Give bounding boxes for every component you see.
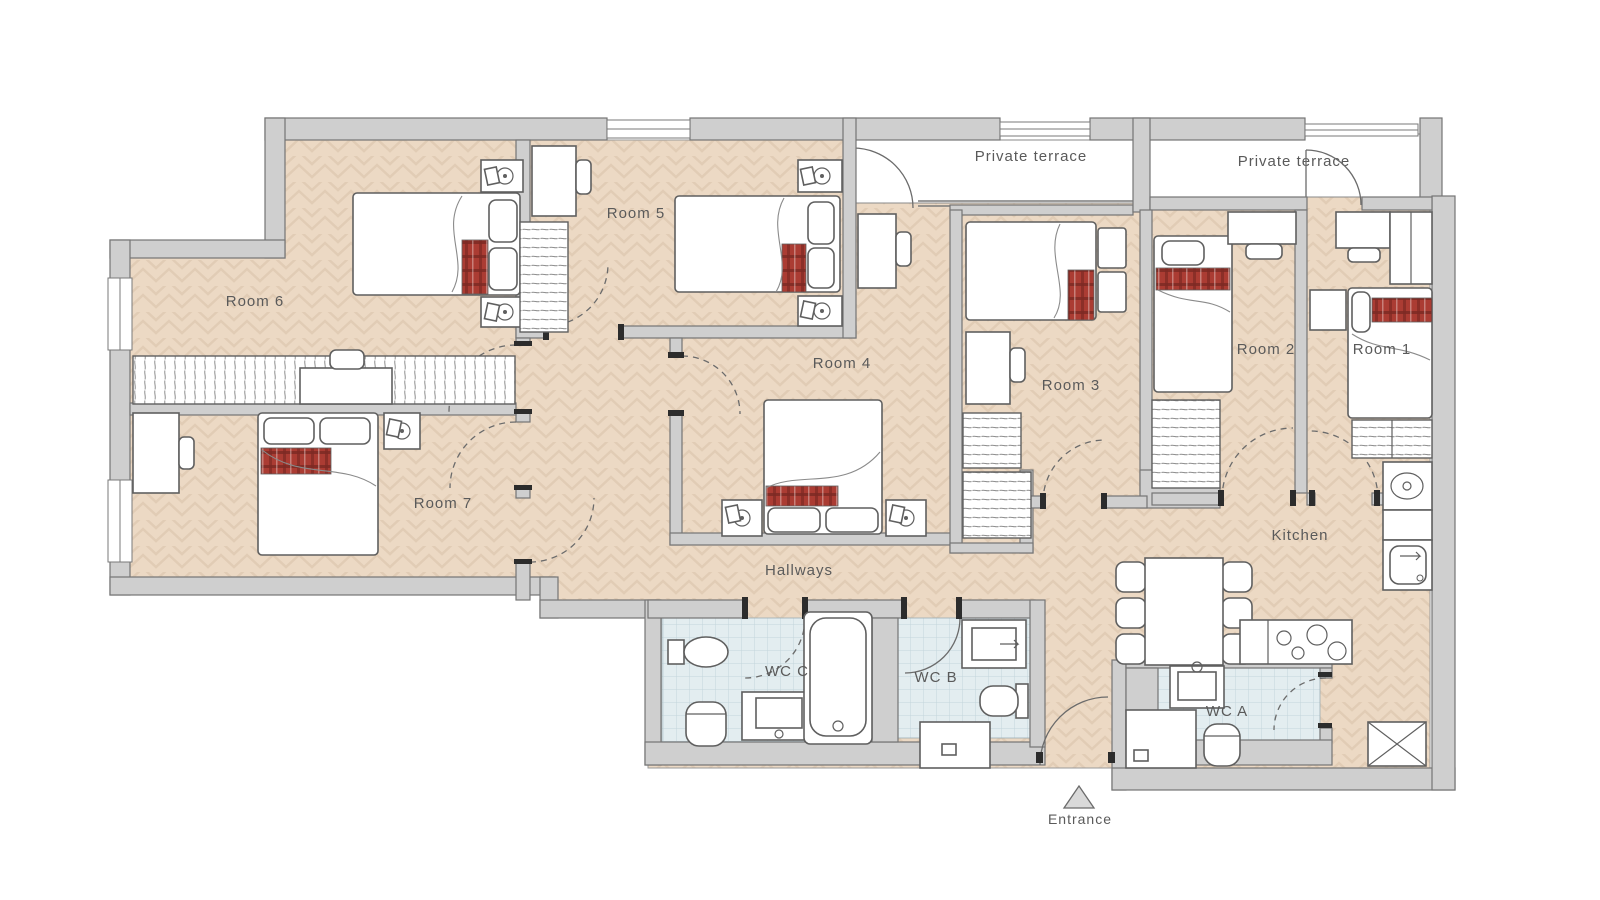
sink <box>962 620 1026 668</box>
toilet <box>686 702 726 746</box>
wardrobe <box>520 222 568 332</box>
shaft <box>1368 722 1426 766</box>
terrace-left: Private terrace <box>853 140 1133 208</box>
room-5-label: Room 5 <box>607 205 666 222</box>
terrace-left-railing <box>1000 122 1090 136</box>
entrance: Entrance <box>1048 786 1112 827</box>
room-2-label: Room 2 <box>1237 341 1296 358</box>
terrace-right-railing <box>1305 124 1418 136</box>
nightstand <box>798 160 842 192</box>
floor-plan-page: Private terrace Private terrace <box>0 0 1600 900</box>
double-bed <box>353 193 520 295</box>
shower <box>1126 710 1196 768</box>
shower <box>920 722 990 768</box>
wc-a-label: WC A <box>1206 703 1248 720</box>
wardrobe <box>1152 400 1220 488</box>
window-top <box>607 120 690 138</box>
toilet <box>1204 724 1240 766</box>
room-7-label: Room 7 <box>414 495 473 512</box>
bidet <box>668 637 728 667</box>
double-bed <box>675 196 840 292</box>
wc-b-label: WC B <box>914 669 957 686</box>
room-1-label: Room 1 <box>1353 341 1412 358</box>
nightstand <box>1310 290 1346 330</box>
hallways-label: Hallways <box>765 562 833 579</box>
room-4-label: Room 4 <box>813 355 872 372</box>
wardrobe <box>963 472 1031 538</box>
bathtub <box>804 612 872 744</box>
nightstand <box>886 500 926 536</box>
nightstand <box>384 413 420 449</box>
floor-plan: Private terrace Private terrace <box>0 0 1600 900</box>
sink <box>1170 662 1224 708</box>
kitchen-label: Kitchen <box>1271 527 1328 544</box>
entrance-marker <box>1064 786 1094 808</box>
room-6-label: Room 6 <box>226 293 285 310</box>
nightstand <box>722 500 762 536</box>
toilet <box>980 684 1028 718</box>
nightstand <box>798 296 842 326</box>
dining-table <box>1145 558 1223 665</box>
wc-c-label: WC C <box>765 663 809 680</box>
drawers <box>1352 420 1432 458</box>
wardrobe <box>1390 212 1432 284</box>
double-bed <box>258 413 378 555</box>
window-left-upper <box>108 278 132 350</box>
kitchen-sink <box>1383 540 1432 590</box>
double-bed <box>764 400 882 534</box>
single-bed <box>1154 236 1232 392</box>
terrace-left-label: Private terrace <box>975 148 1088 165</box>
washing-machine <box>1383 462 1432 510</box>
room-3-label: Room 3 <box>1042 377 1101 394</box>
counter <box>1383 510 1432 540</box>
entrance-label: Entrance <box>1048 811 1112 827</box>
window-left-lower <box>108 480 132 562</box>
terrace-right-label: Private terrace <box>1238 153 1351 170</box>
nightstand <box>481 160 523 192</box>
hob <box>1240 620 1352 664</box>
nightstand <box>481 297 523 327</box>
wardrobe <box>963 413 1021 468</box>
terrace-right: Private terrace <box>1150 134 1420 205</box>
